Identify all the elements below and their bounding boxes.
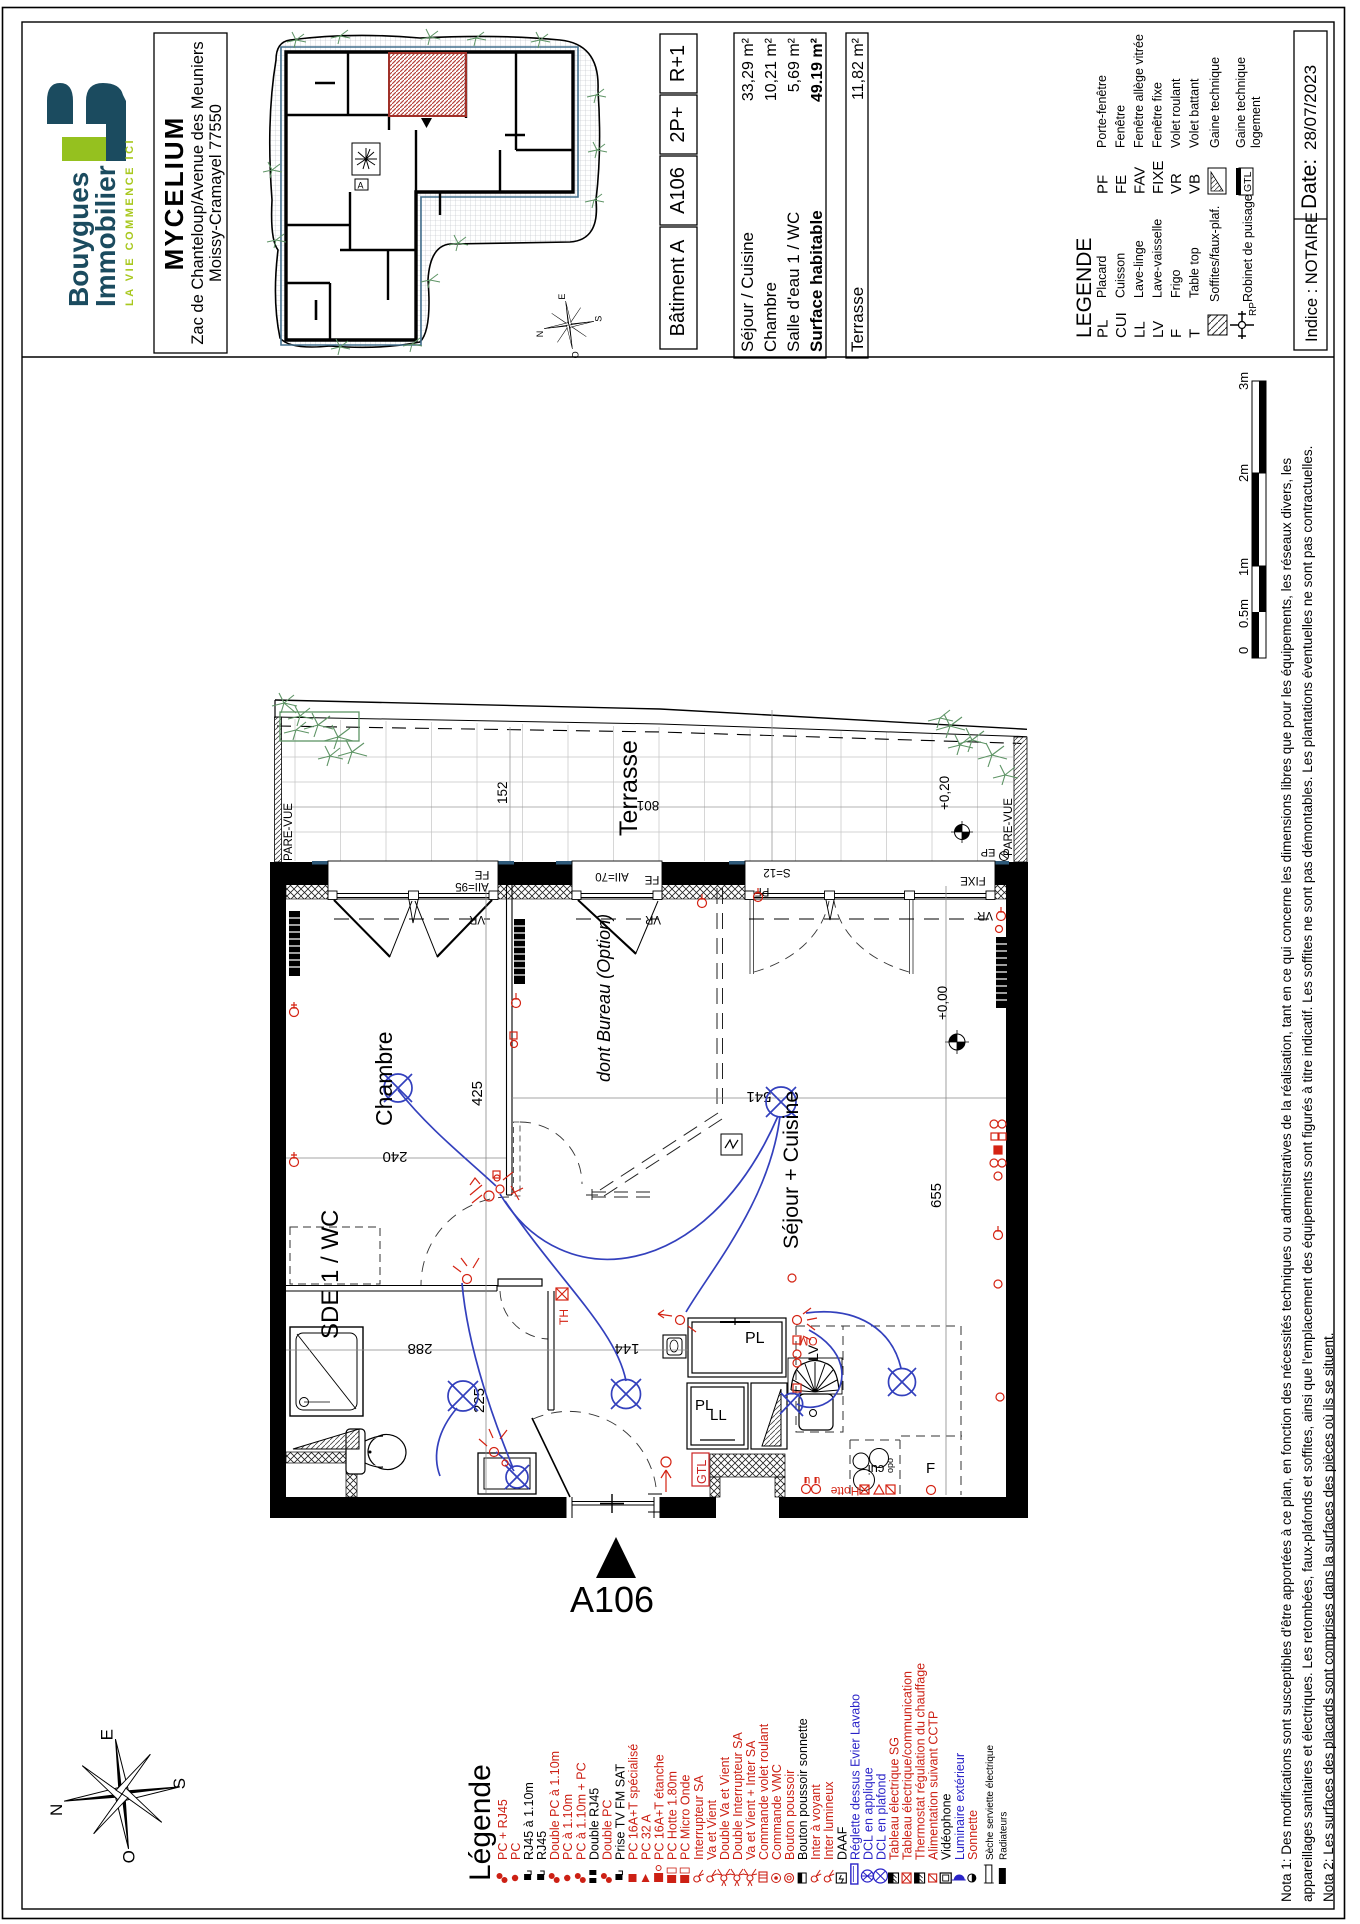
svg-text:FE: FE	[474, 868, 489, 880]
svg-text:Tableau électrique SG: Tableau électrique SG	[888, 1737, 902, 1860]
svg-text:Bouton poussoir sonnette: Bouton poussoir sonnette	[796, 1718, 810, 1860]
svg-text:288: 288	[407, 1340, 432, 1357]
svg-text:Gaine technique: Gaine technique	[1208, 57, 1222, 148]
svg-text:RP: RP	[1248, 302, 1259, 316]
svg-text:Inter lumineux: Inter lumineux	[822, 1781, 836, 1860]
svg-text:VR: VR	[645, 913, 661, 925]
svg-text:EP: EP	[981, 846, 996, 858]
svg-text:LEGENDE: LEGENDE	[1073, 238, 1096, 338]
svg-text:logement: logement	[1249, 96, 1263, 148]
svg-text:FIXE: FIXE	[960, 874, 986, 886]
svg-text:Sonnette: Sonnette	[966, 1810, 980, 1860]
svg-text:DCL en plafond: DCL en plafond	[875, 1774, 889, 1860]
svg-text:Double PC à 1.10m: Double PC à 1.10m	[548, 1751, 562, 1860]
svg-text:Va et Vient: Va et Vient	[705, 1799, 719, 1860]
svg-text:DAAF: DAAF	[835, 1826, 849, 1860]
svg-text:Bâtiment A: Bâtiment A	[667, 239, 689, 336]
svg-text:DCL en applique: DCL en applique	[861, 1767, 875, 1860]
svg-text:Salle d'eau 1 / WC: Salle d'eau 1 / WC	[784, 212, 803, 352]
svg-text:VR: VR	[1168, 173, 1185, 194]
svg-text:Zac de Chanteloup/Avenue des M: Zac de Chanteloup/Avenue des Meuniers	[189, 41, 207, 344]
svg-text:3m: 3m	[1236, 372, 1251, 390]
svg-text:33,29 m²: 33,29 m²	[740, 37, 757, 101]
svg-text:O: O	[571, 351, 581, 358]
svg-text:F: F	[926, 1460, 935, 1477]
svg-text:Fenêtre fixe: Fenêtre fixe	[1151, 82, 1165, 148]
svg-text:Double Interrupteur SA: Double Interrupteur SA	[731, 1731, 745, 1860]
svg-text:PF: PF	[1095, 175, 1112, 194]
svg-text:Frigo: Frigo	[1169, 269, 1183, 298]
svg-text:N: N	[535, 331, 545, 338]
svg-text:Fenêtre allège vitrée: Fenêtre allège vitrée	[1132, 34, 1146, 148]
svg-text:Chambre: Chambre	[761, 282, 780, 352]
svg-text:655: 655	[928, 1183, 945, 1208]
svg-text:A106: A106	[667, 167, 689, 214]
svg-text:Volet battant: Volet battant	[1188, 78, 1202, 148]
svg-text:T: T	[1187, 329, 1204, 338]
svg-text:AII=95: AII=95	[455, 880, 489, 892]
svg-text:FAV: FAV	[1132, 167, 1149, 194]
svg-text:PC: PC	[509, 1843, 523, 1860]
svg-text:5,69 m²: 5,69 m²	[786, 37, 803, 92]
svg-text:Terrasse: Terrasse	[615, 740, 643, 836]
svg-text:425: 425	[469, 1081, 486, 1106]
svg-text:Double PC: Double PC	[600, 1800, 614, 1860]
svg-text:Porte-fenêtre: Porte-fenêtre	[1095, 75, 1109, 148]
svg-text:S: S	[170, 1778, 189, 1789]
svg-text:Immobilier: Immobilier	[90, 165, 121, 307]
svg-text:FE: FE	[644, 873, 659, 885]
svg-text:Alimentation suivant CCTP: Alimentation suivant CCTP	[927, 1711, 941, 1860]
svg-text:Réglette dessus Evier Lavabo: Réglette dessus Evier Lavabo	[848, 1694, 862, 1860]
svg-text:FE: FE	[1113, 175, 1130, 194]
svg-text:VR: VR	[469, 913, 485, 925]
svg-text:152: 152	[495, 781, 510, 804]
svg-text:Surface habitable: Surface habitable	[807, 210, 826, 352]
svg-text:28/07/2023: 28/07/2023	[1301, 65, 1320, 150]
svg-text:PC + RJ45: PC + RJ45	[496, 1799, 510, 1860]
svg-text:VB: VB	[1187, 174, 1204, 194]
svg-text:Sèche serviette électrique: Sèche serviette électrique	[985, 1744, 996, 1860]
svg-text:A: A	[358, 181, 364, 191]
svg-text:Date:: Date:	[1298, 159, 1321, 209]
svg-text:LL: LL	[1132, 321, 1149, 338]
svg-text:Nota 1: Des modifications sont: Nota 1: Des modifications sont susceptib…	[1279, 458, 1294, 1902]
svg-text:Indice : NOTAIRE: Indice : NOTAIRE	[1303, 212, 1321, 342]
svg-text:Bouton poussoir: Bouton poussoir	[783, 1770, 797, 1860]
svg-text:Chambre: Chambre	[371, 1031, 397, 1126]
svg-text:PC à 1.10m: PC à 1.10m	[561, 1794, 575, 1860]
svg-text:LV: LV	[1150, 321, 1167, 338]
svg-text:E: E	[97, 1729, 116, 1740]
svg-text:F: F	[1168, 329, 1185, 338]
svg-text:Luminaire extérieur: Luminaire extérieur	[953, 1753, 967, 1860]
svg-text:Nota 2: Les surfaces des placa: Nota 2: Les surfaces des placards sont c…	[1321, 1332, 1336, 1902]
svg-text:2m: 2m	[1236, 464, 1251, 482]
svg-text:Placard: Placard	[1095, 256, 1109, 298]
svg-text:PC à 1.10m + PC: PC à 1.10m + PC	[574, 1762, 588, 1860]
svg-text:Tableau électrique/communicati: Tableau électrique/communication	[901, 1671, 915, 1860]
svg-text:GTL: GTL	[695, 1460, 709, 1484]
svg-text:PL: PL	[745, 1330, 765, 1347]
svg-text:Séjour + Cuisine: Séjour + Cuisine	[779, 1091, 803, 1249]
svg-text:N: N	[47, 1804, 66, 1816]
svg-text:GTL: GTL	[1242, 171, 1254, 192]
svg-text:appareillages sanitaires et él: appareillages sanitaires et électriques.…	[1300, 446, 1315, 1902]
svg-text:Cuisson: Cuisson	[1114, 253, 1128, 298]
svg-text:Fenêtre: Fenêtre	[1114, 105, 1128, 148]
svg-text:Commande VMC: Commande VMC	[770, 1764, 784, 1860]
svg-text:Moissy-Cramayel 77550: Moissy-Cramayel 77550	[207, 104, 225, 282]
svg-text:CUI: CUI	[1113, 312, 1130, 338]
svg-text:Commande volet roulant: Commande volet roulant	[757, 1723, 771, 1860]
svg-text:PARE-VUE: PARE-VUE	[283, 803, 295, 861]
svg-text:Séjour / Cuisine: Séjour / Cuisine	[738, 232, 757, 352]
svg-text:Prise TV FM SAT: Prise TV FM SAT	[614, 1764, 628, 1860]
svg-text:PC 32 A: PC 32 A	[640, 1813, 654, 1860]
svg-text:R+1: R+1	[667, 45, 689, 82]
svg-text:Thermostat régulation du chauf: Thermostat régulation du chauffage	[914, 1663, 928, 1860]
svg-text:Lave-linge: Lave-linge	[1132, 240, 1146, 298]
svg-text:11,82 m²: 11,82 m²	[850, 37, 867, 100]
svg-text:AII=70: AII=70	[595, 870, 629, 882]
svg-text:Va et Vient + Inter SA: Va et Vient + Inter SA	[744, 1740, 758, 1860]
svg-text:Légende: Légende	[464, 1764, 497, 1881]
svg-text:RJ45 à 1.10m: RJ45 à 1.10m	[522, 1782, 536, 1860]
svg-text:Robinet de puisage: Robinet de puisage	[1241, 194, 1255, 302]
svg-text:Volet roulant: Volet roulant	[1169, 78, 1183, 148]
svg-text:E: E	[557, 294, 567, 300]
svg-text:Soffites/faux-plaf.: Soffites/faux-plaf.	[1208, 206, 1222, 302]
svg-text:PC 16A+T spécialisé: PC 16A+T spécialisé	[627, 1744, 641, 1860]
svg-text:TH: TH	[557, 1309, 571, 1325]
svg-text:PC Micro Onde: PC Micro Onde	[679, 1775, 693, 1860]
svg-text:Terrasse: Terrasse	[848, 287, 867, 352]
svg-text:Vidéophone: Vidéophone	[940, 1793, 954, 1860]
svg-text:LA VIE COMMENCE ICI: LA VIE COMMENCE ICI	[124, 138, 136, 306]
svg-text:0.5m: 0.5m	[1236, 599, 1251, 628]
svg-text:MYCELIUM: MYCELIUM	[159, 116, 189, 271]
svg-text:VR: VR	[977, 909, 993, 921]
svg-text:801: 801	[637, 798, 660, 813]
svg-text:Double RJ45: Double RJ45	[587, 1788, 601, 1860]
svg-text:RJ45: RJ45	[535, 1831, 549, 1860]
svg-text:Gaine technique: Gaine technique	[1234, 57, 1248, 148]
svg-text:u u: u u	[804, 1474, 821, 1488]
svg-text:10,21 m²: 10,21 m²	[763, 37, 780, 101]
svg-text:PARE-VUE: PARE-VUE	[1003, 798, 1015, 856]
svg-text:+0,00: +0,00	[935, 986, 950, 1020]
svg-text:PL: PL	[1095, 320, 1112, 338]
svg-text:PC Hotte 1.80m: PC Hotte 1.80m	[666, 1771, 680, 1860]
svg-text:Double Va et Vient: Double Va et Vient	[718, 1756, 732, 1860]
svg-text:PC 16A+T étanche: PC 16A+T étanche	[653, 1754, 667, 1860]
svg-text:opo: opo	[885, 1458, 895, 1473]
svg-text:0: 0	[1236, 647, 1251, 654]
svg-text:S: S	[593, 316, 603, 322]
svg-text:2P+: 2P+	[667, 106, 689, 142]
svg-text:A106: A106	[570, 1579, 654, 1620]
svg-text:49.19 m²: 49.19 m²	[809, 38, 826, 102]
svg-text:Interrupteur SA: Interrupteur SA	[692, 1775, 706, 1860]
svg-text:cui: cui	[868, 1462, 885, 1477]
svg-text:SDE 1 / WC: SDE 1 / WC	[317, 1210, 344, 1339]
svg-text:S=12: S=12	[763, 866, 790, 878]
svg-text:Hotte: Hotte	[830, 1484, 859, 1498]
svg-text:240: 240	[382, 1148, 407, 1165]
svg-text:LL: LL	[710, 1407, 727, 1424]
svg-text:Lave-vaisselle: Lave-vaisselle	[1151, 219, 1165, 298]
svg-text:FIXE: FIXE	[1150, 161, 1167, 194]
svg-text:144: 144	[614, 1340, 639, 1357]
svg-text:Radiateurs: Radiateurs	[998, 1812, 1009, 1860]
svg-text:1m: 1m	[1236, 558, 1251, 576]
svg-text:O: O	[119, 1850, 138, 1863]
svg-text:LV: LV	[805, 1344, 821, 1361]
svg-text:Table top: Table top	[1188, 247, 1202, 298]
svg-text:Inter à voyant: Inter à voyant	[809, 1784, 823, 1860]
svg-text:dont Bureau (Option): dont Bureau (Option)	[594, 914, 614, 1082]
svg-text:+0,20: +0,20	[937, 776, 952, 810]
